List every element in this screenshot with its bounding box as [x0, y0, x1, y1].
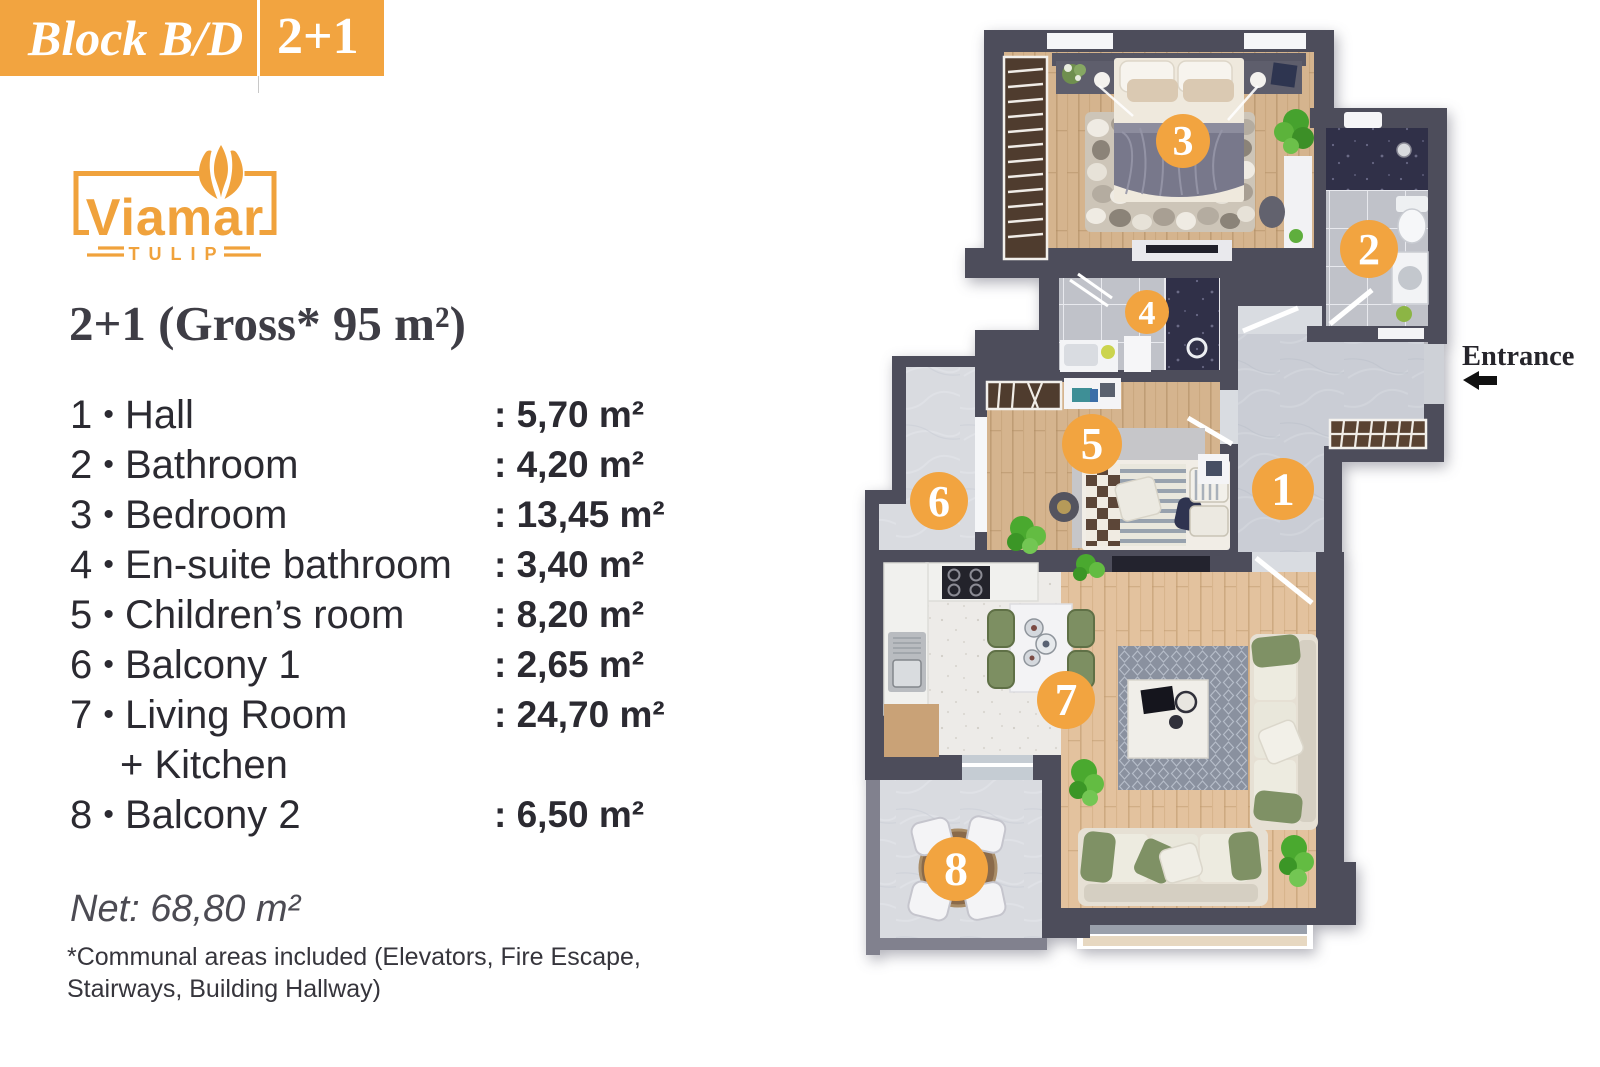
svg-text:5: 5: [1081, 419, 1104, 469]
svg-text:6: 6: [928, 477, 950, 526]
svg-text:7: 7: [1055, 675, 1078, 725]
svg-text:1: 1: [1271, 464, 1295, 516]
svg-text:8: 8: [944, 843, 968, 896]
svg-text:Entrance: Entrance: [1462, 341, 1574, 372]
svg-text:3: 3: [1173, 119, 1194, 165]
svg-text:4: 4: [1139, 295, 1156, 332]
svg-text:2: 2: [1358, 225, 1380, 274]
